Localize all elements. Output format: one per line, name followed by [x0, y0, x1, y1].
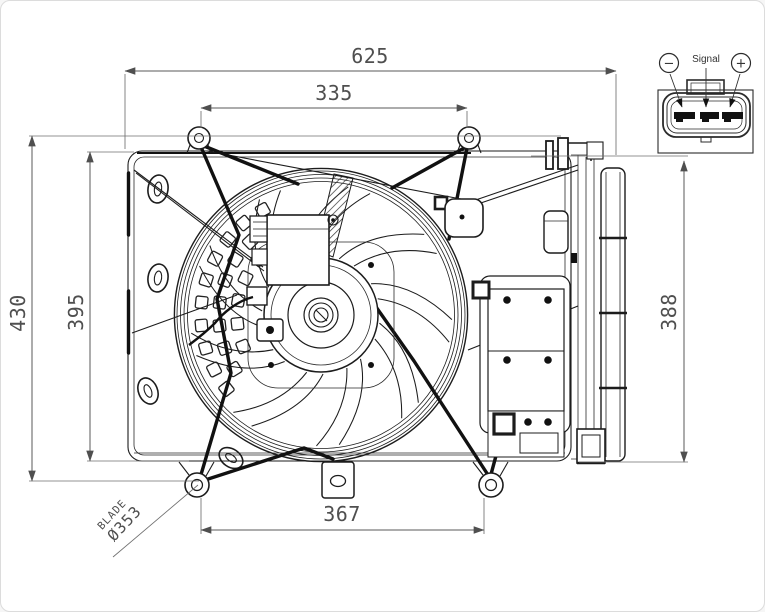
dim-side-profile-height: 388: [657, 293, 681, 331]
top-mount-posts: [187, 127, 481, 153]
dimension-335: 335: [201, 81, 467, 128]
dimension-395: 395: [64, 152, 189, 461]
dimension-367: 367: [201, 498, 484, 534]
fan-assembly-drawing: 625 335 430 395 388 367 BLADE Ø353: [1, 1, 765, 612]
side-profile: [577, 168, 627, 463]
dim-shroud-height: 395: [64, 293, 88, 331]
dim-overall-width: 625: [351, 44, 389, 68]
dim-upper-mount-span: 335: [315, 81, 353, 105]
dim-lower-mount-span: 367: [323, 502, 361, 526]
plus-terminal-label: +: [736, 57, 747, 72]
shroud-oval-holes: [134, 174, 247, 473]
connector-detail: − + Signal: [658, 54, 753, 154]
signal-pin-label: Signal: [692, 54, 720, 65]
mount-clip: [546, 138, 603, 169]
blade-diameter-callout: BLADE Ø353: [95, 485, 198, 557]
minus-terminal-label: −: [664, 57, 675, 72]
drawing-sheet: 625 335 430 395 388 367 BLADE Ø353: [0, 0, 765, 612]
dim-overall-height: 430: [6, 294, 30, 332]
connector-pins: [674, 112, 743, 122]
electronics-panel: [435, 197, 577, 457]
